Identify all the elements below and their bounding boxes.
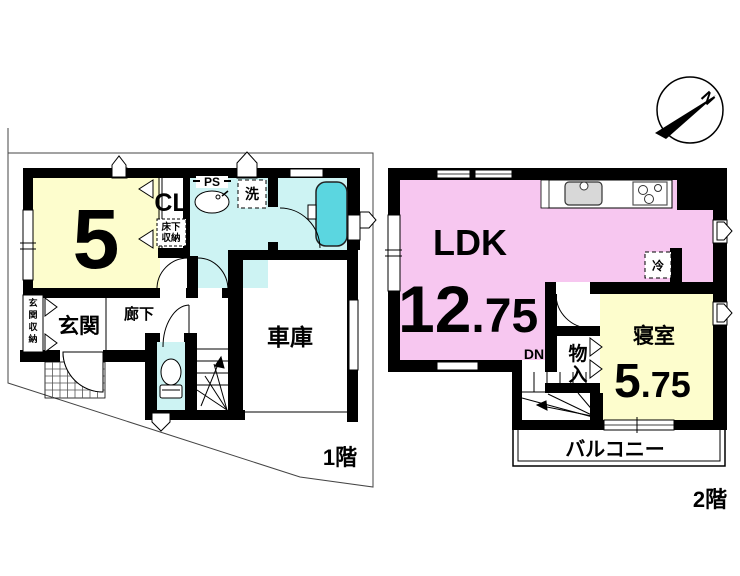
bathtub	[316, 182, 347, 246]
vent-arrow-up-icon	[112, 156, 126, 177]
washroom-door-arc	[157, 258, 188, 290]
floor2-title: 2階	[693, 487, 727, 512]
floor-plan-page: 5 CL 床下 収納 PS 洗 玄関 玄 関 収 納 廊下 車庫 1階	[0, 0, 740, 576]
kitchen	[541, 180, 672, 208]
laundry-label: 洗	[245, 186, 259, 202]
balcony-label: バルコニー	[565, 438, 665, 461]
entrance-storage-label: 玄	[28, 297, 37, 308]
stairs-down-label: DN	[524, 346, 544, 362]
garage-window	[349, 300, 358, 370]
entrance-storage-label: 関	[28, 310, 37, 320]
ldk-size-dec: .75	[471, 290, 538, 343]
floor1-plan: 5 CL 床下 収納 PS 洗 玄関 玄 関 収 納 廊下 車庫 1階	[20, 152, 376, 470]
bath-side-window	[348, 215, 360, 240]
entrance-storage-label: 納	[28, 333, 37, 344]
floor2-stairs	[522, 372, 600, 419]
door-gap	[198, 288, 222, 298]
bath-door-gap	[268, 207, 278, 242]
fold-door-icon	[45, 334, 57, 352]
bedroom-door-arc	[556, 294, 590, 328]
vent-arrow-right-icon	[717, 304, 732, 322]
bedroom-label: 寝室	[633, 324, 675, 348]
bedroom-size-dec: .75	[641, 364, 691, 405]
bedroom-door-gap	[556, 282, 590, 294]
window	[437, 362, 478, 370]
compass-icon: N	[655, 77, 723, 143]
faucet-icon	[580, 182, 588, 190]
bath-counter	[308, 205, 316, 219]
ldk-size-int: 12	[398, 272, 471, 346]
toilet-tank	[160, 385, 182, 398]
vent-arrow-right-icon	[717, 222, 732, 240]
floor1-title: 1階	[323, 445, 357, 470]
toilet-bowl	[161, 359, 181, 385]
storage-label: 物	[568, 342, 587, 365]
entrance-label: 玄関	[58, 314, 100, 338]
stove	[633, 182, 667, 205]
underfloor-storage-label: 収納	[161, 232, 180, 244]
floor1-stairs	[197, 349, 228, 410]
fold-door-icon	[45, 298, 57, 316]
floor2-plan: LDK 12.75 冷 寝室 5.75 物 入 DN バルコニー 2階	[385, 168, 732, 512]
bedroom-size-int: 5	[614, 355, 641, 408]
ldk-label: LDK	[433, 222, 507, 263]
pipe-space-label: PS	[204, 175, 220, 189]
room5-window	[23, 210, 33, 280]
storage-label: 入	[568, 364, 587, 386]
entrance-storage-label: 収	[28, 321, 38, 332]
bath-window	[290, 169, 323, 177]
closet-label: CL	[154, 189, 187, 217]
hallway-label: 廊下	[124, 305, 154, 323]
vent-arrow-up-icon	[237, 152, 257, 177]
vent-arrow-down-icon	[152, 413, 170, 431]
floor-plan-drawing: 5 CL 床下 収納 PS 洗 玄関 玄 関 収 納 廊下 車庫 1階	[0, 0, 740, 576]
stairs-up-arrow	[215, 357, 224, 368]
door-gap	[160, 288, 186, 298]
garage-label: 車庫	[267, 324, 313, 350]
room5-size-label: 5	[73, 192, 120, 286]
vent-arrow-right-icon	[360, 212, 376, 228]
underfloor-storage-label: 床下	[161, 221, 181, 233]
fridge-label: 冷	[652, 258, 664, 273]
